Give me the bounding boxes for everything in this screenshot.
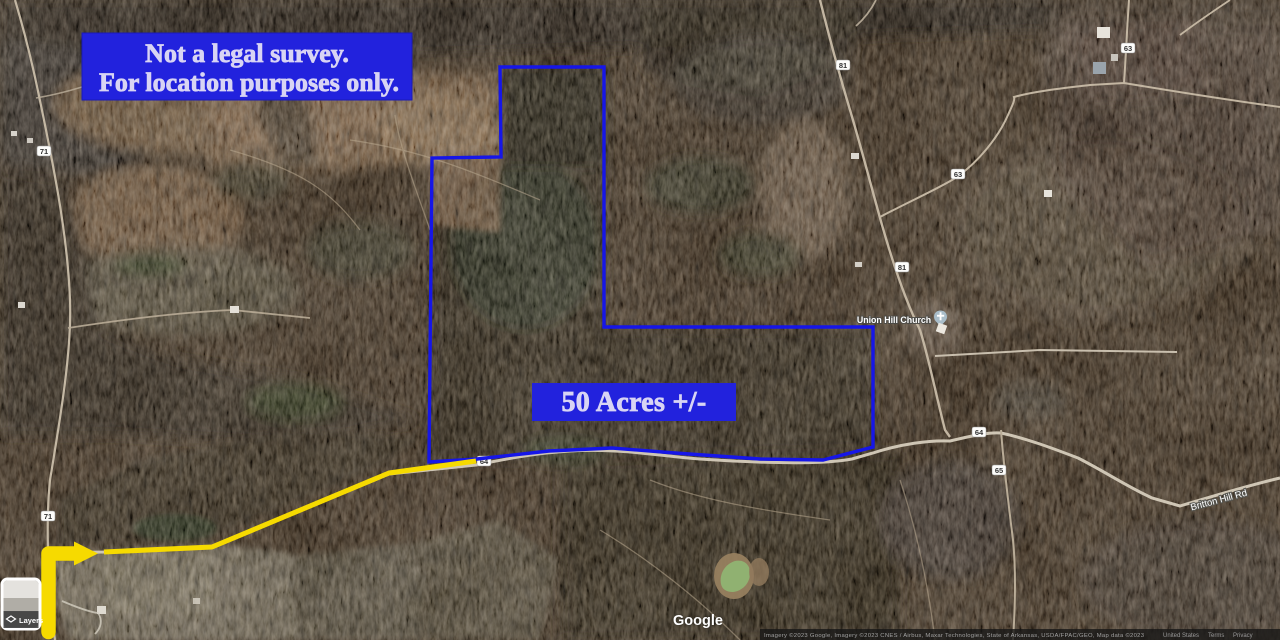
svg-text:71: 71 — [44, 512, 52, 521]
svg-text:50 Acres +/-: 50 Acres +/- — [561, 387, 706, 418]
svg-text:71: 71 — [40, 147, 48, 156]
svg-text:Layers: Layers — [19, 616, 43, 625]
svg-text:63: 63 — [954, 170, 962, 179]
svg-text:81: 81 — [898, 263, 906, 272]
svg-text:United States: United States — [1163, 633, 1199, 639]
svg-text:For location purposes only.: For location purposes only. — [99, 68, 399, 97]
svg-text:Imagery ©2023 Google, Imagery: Imagery ©2023 Google, Imagery ©2023 CNES… — [764, 632, 1145, 639]
svg-text:Not a legal survey.: Not a legal survey. — [145, 39, 349, 68]
svg-text:65: 65 — [995, 466, 1003, 475]
svg-text:Privacy: Privacy — [1233, 633, 1253, 639]
svg-text:64: 64 — [975, 428, 984, 437]
svg-text:Google: Google — [673, 613, 723, 629]
svg-text:81: 81 — [839, 61, 847, 70]
svg-text:Union Hill Church: Union Hill Church — [857, 315, 931, 325]
svg-text:Terms: Terms — [1208, 633, 1224, 639]
svg-text:63: 63 — [1124, 44, 1132, 53]
